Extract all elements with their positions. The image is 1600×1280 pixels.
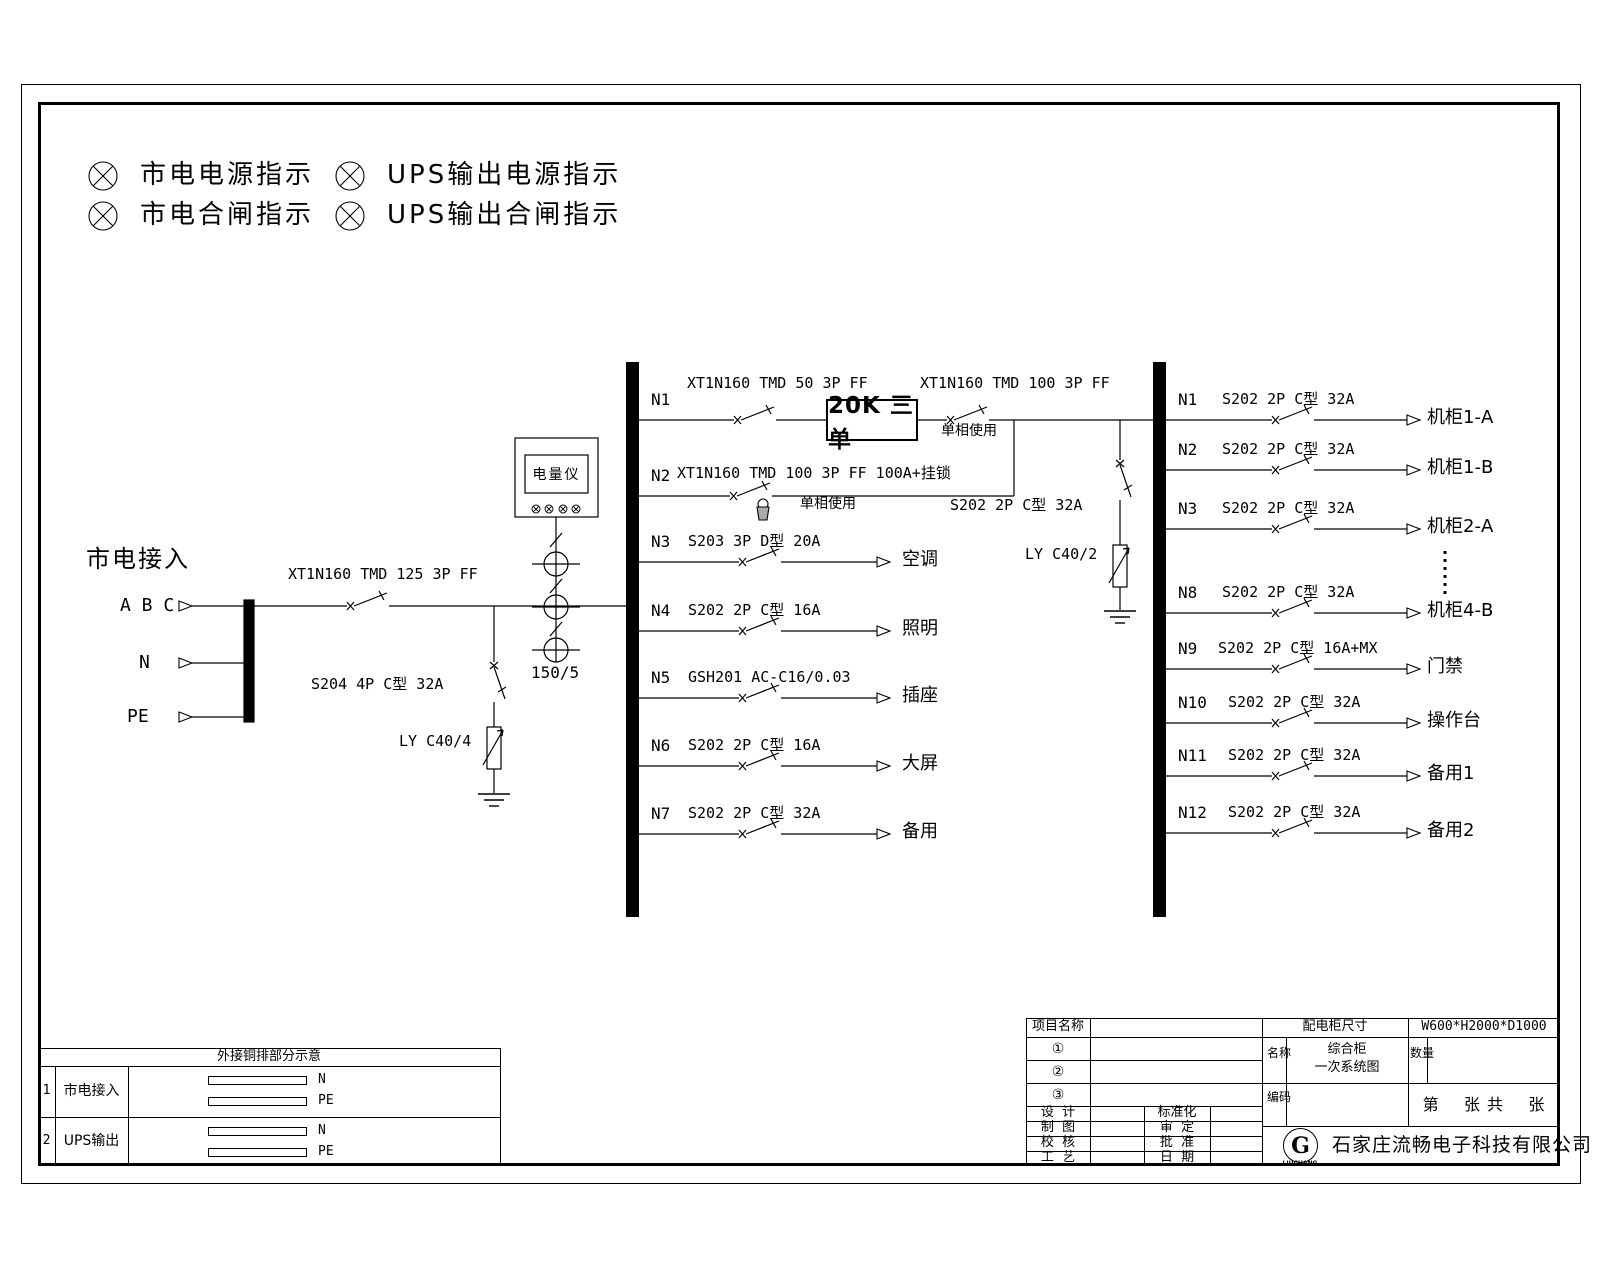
- standardization-label: 标准化: [1144, 1107, 1210, 1120]
- bypass-breaker-label: XT1N160 TMD 100 3P FF 100A+挂锁: [677, 465, 951, 482]
- table-title: 外接铜排部分示意: [38, 1050, 500, 1065]
- load-arrow-icon: [877, 761, 890, 771]
- date-label: 日 期: [1144, 1152, 1210, 1165]
- ellipsis-icon: [1444, 551, 1447, 594]
- circuit-breaker-label: S203 3P D型 20A: [688, 533, 820, 550]
- load-arrow-icon: [877, 693, 890, 703]
- bus1-feeder-rows: [639, 547, 890, 839]
- designer-label: 设 计: [1026, 1107, 1090, 1120]
- grid-line: [1026, 1037, 1560, 1038]
- cabinet-name-2: 一次系统图: [1286, 1061, 1408, 1076]
- drawing-sheet: 市电电源指示 UPS输出电源指示 市电合闸指示 UPS输出合闸指示 市电接入 A…: [0, 0, 1600, 1280]
- circuit-breaker-label: S202 2P C型 32A: [1228, 747, 1360, 764]
- meter-terminal-icon: [532, 505, 540, 513]
- input-arrow-icon: [179, 712, 192, 722]
- draftsman-label: 制 图: [1026, 1122, 1090, 1135]
- surge-arrester-icon: [483, 727, 503, 769]
- cabinet-name-1: 综合柜: [1286, 1043, 1408, 1058]
- ups-spd-branch: [1104, 420, 1136, 623]
- company-logo-text: LIUCHANG: [1278, 1160, 1322, 1167]
- grid-line: [1090, 1018, 1091, 1166]
- meter-terminal-icon: [545, 505, 553, 513]
- circuit-id: N1: [1178, 391, 1197, 409]
- review-label: 审 定: [1144, 1122, 1210, 1135]
- ground-icon: [1104, 611, 1136, 623]
- load-arrow-icon: [1407, 771, 1420, 781]
- circuit-breaker-label: S202 2P C型 32A: [688, 805, 820, 822]
- revision-3: ③: [1026, 1086, 1090, 1104]
- legend-item-label: UPS输出合闸指示: [387, 201, 621, 231]
- ups-output-breaker-label: XT1N160 TMD 100 3P FF: [920, 375, 1110, 392]
- revision-2: ②: [1026, 1063, 1090, 1081]
- circuit-id: N2: [1178, 441, 1197, 459]
- meter-label: 电量仪: [525, 455, 588, 493]
- ups-unit: 20K 三单: [826, 399, 918, 441]
- circuit-id: N2: [651, 467, 670, 485]
- legend-item-label: 市电合闸指示: [140, 201, 314, 231]
- circuit-id: N5: [651, 669, 670, 687]
- pe-label: PE: [127, 707, 149, 728]
- row-name: 市电接入: [55, 1083, 128, 1099]
- cabinet-size-value: W600*H2000*D1000: [1408, 1020, 1560, 1035]
- grid-line: [1427, 1037, 1428, 1083]
- circuit-breaker-label: S202 2P C型 16A+MX: [1218, 640, 1378, 657]
- circuit-breaker-label: S202 2P C型 32A: [1222, 391, 1354, 408]
- approve-label: 批 准: [1144, 1137, 1210, 1150]
- revision-1: ①: [1026, 1040, 1090, 1058]
- circuit-breaker-label: GSH201 AC-C16/0.03: [688, 669, 851, 686]
- circuit-breaker-label: S202 2P C型 32A: [1222, 500, 1354, 517]
- distribution-busbar-1: [626, 362, 639, 917]
- surge-arrester-icon: [1109, 545, 1129, 587]
- load-label: 大屏: [902, 754, 938, 775]
- lamp-icon: [89, 162, 117, 190]
- legend-item-label: 市电电源指示: [140, 161, 314, 191]
- incoming-feeders: [179, 600, 254, 722]
- code-label: 编码: [1267, 1091, 1282, 1104]
- circuit-breaker-label: S202 2P C型 32A: [1228, 804, 1360, 821]
- incoming-title: 市电接入: [86, 546, 190, 574]
- input-busbar: [244, 600, 254, 722]
- process-label: 工 艺: [1026, 1152, 1090, 1165]
- sheet-number: 第 张 共 张: [1408, 1095, 1560, 1115]
- circuit-id: N12: [1178, 804, 1207, 822]
- load-arrow-icon: [1407, 664, 1420, 674]
- lamp-icon: [336, 202, 364, 230]
- row-number: 1: [38, 1083, 55, 1099]
- grid-line: [1262, 1126, 1560, 1127]
- legend-item-label: UPS输出电源指示: [387, 161, 621, 191]
- bar-label: PE: [318, 1094, 334, 1109]
- grid-line: [1210, 1106, 1211, 1166]
- lamp-icon: [89, 202, 117, 230]
- copper-bar: [208, 1148, 307, 1157]
- load-arrow-icon: [1407, 828, 1420, 838]
- ups-spd-breaker-label: S202 2P C型 32A: [950, 497, 1082, 514]
- row-name: UPS输出: [55, 1133, 128, 1149]
- project-name-label: 项目名称: [1026, 1020, 1090, 1035]
- spd-breaker-icon: [1116, 460, 1132, 497]
- circuit-id: N11: [1178, 747, 1207, 765]
- circuit-breaker-label: S202 2P C型 32A: [1228, 694, 1360, 711]
- load-arrow-icon: [1407, 465, 1420, 475]
- bar-label: PE: [318, 1145, 334, 1160]
- circuit-breaker-label: S202 2P C型 16A: [688, 602, 820, 619]
- name-label: 名称: [1267, 1047, 1282, 1060]
- breaker-icon: [734, 405, 774, 424]
- meter-terminal-icon: [559, 505, 567, 513]
- load-arrow-icon: [1407, 524, 1420, 534]
- quantity-label: 数量: [1410, 1047, 1425, 1060]
- load-label: 照明: [902, 619, 938, 640]
- main-breaker-label: XT1N160 TMD 125 3P FF: [288, 566, 478, 583]
- load-label: 备用: [902, 822, 938, 843]
- circuit-id: N3: [1178, 500, 1197, 518]
- table-line: [500, 1048, 501, 1166]
- load-arrow-icon: [1407, 608, 1420, 618]
- circuit-breaker-label: S202 2P C型 32A: [1222, 441, 1354, 458]
- load-label: 插座: [902, 686, 938, 707]
- copper-bar: [208, 1127, 307, 1136]
- bar-label: N: [318, 1073, 326, 1088]
- copper-bar: [208, 1097, 307, 1106]
- load-arrow-icon: [1407, 415, 1420, 425]
- grid-line: [1262, 1018, 1263, 1166]
- circuit-breaker-label: S202 2P C型 32A: [1222, 584, 1354, 601]
- bar-label: N: [318, 1124, 326, 1139]
- circuit-id: N4: [651, 602, 670, 620]
- grid-line: [1026, 1060, 1262, 1061]
- load-label: 机柜4-B: [1427, 601, 1493, 622]
- phase-label: A B C: [120, 596, 174, 617]
- company-logo: G: [1283, 1128, 1318, 1163]
- company-name: 石家庄流畅电子科技有限公司: [1332, 1135, 1592, 1157]
- input-spd-branch: [478, 606, 510, 806]
- padlock-icon: [757, 499, 769, 520]
- ground-icon: [478, 794, 510, 806]
- circuit-id: N8: [1178, 584, 1197, 602]
- circuit-id: N10: [1178, 694, 1207, 712]
- load-label: 机柜2-A: [1427, 517, 1493, 538]
- spd-breaker-label: S204 4P C型 32A: [311, 676, 443, 693]
- circuit-id: N1: [651, 391, 670, 409]
- table-line: [38, 1066, 500, 1067]
- circuit-id: N3: [651, 533, 670, 551]
- load-label: 机柜1-A: [1427, 408, 1493, 429]
- load-arrow-icon: [877, 626, 890, 636]
- input-arrow-icon: [179, 658, 192, 668]
- ups-output-note: 单相使用: [941, 423, 997, 439]
- breaker-icon: [730, 481, 770, 500]
- checker-label: 校 核: [1026, 1137, 1090, 1150]
- lamp-icon: [336, 162, 364, 190]
- load-label: 备用1: [1427, 764, 1474, 785]
- table-line: [128, 1066, 129, 1166]
- load-label: 备用2: [1427, 821, 1474, 842]
- grid-line: [1026, 1083, 1560, 1084]
- ct-ratio-label: 150/5: [531, 664, 579, 682]
- table-line: [55, 1066, 56, 1166]
- cabinet-size-label: 配电柜尺寸: [1262, 1020, 1408, 1035]
- neutral-label: N: [139, 653, 150, 674]
- circuit-id: N9: [1178, 640, 1197, 658]
- copper-bar: [208, 1076, 307, 1085]
- load-label: 门禁: [1427, 657, 1463, 678]
- input-arrow-icon: [179, 601, 192, 611]
- distribution-busbar-2: [1153, 362, 1166, 917]
- spd-label: LY C40/4: [399, 733, 471, 750]
- main-breaker-icon: [347, 591, 387, 610]
- breaker-icon: [947, 405, 987, 424]
- circuit-id: N6: [651, 737, 670, 755]
- meter-terminal-icon: [572, 505, 580, 513]
- spd-breaker-icon: [490, 662, 506, 699]
- ups-spd-label: LY C40/2: [1025, 546, 1097, 563]
- load-arrow-icon: [877, 829, 890, 839]
- bus2-feeder-rows: [1166, 405, 1447, 838]
- circuit-breaker-label: S202 2P C型 16A: [688, 737, 820, 754]
- bypass-note: 单相使用: [800, 496, 856, 512]
- table-line: [38, 1117, 500, 1118]
- load-label: 机柜1-B: [1427, 458, 1493, 479]
- load-label: 空调: [902, 550, 938, 571]
- load-label: 操作台: [1427, 711, 1481, 732]
- load-arrow-icon: [877, 557, 890, 567]
- circuit-id: N7: [651, 805, 670, 823]
- load-arrow-icon: [1407, 718, 1420, 728]
- row-number: 2: [38, 1133, 55, 1149]
